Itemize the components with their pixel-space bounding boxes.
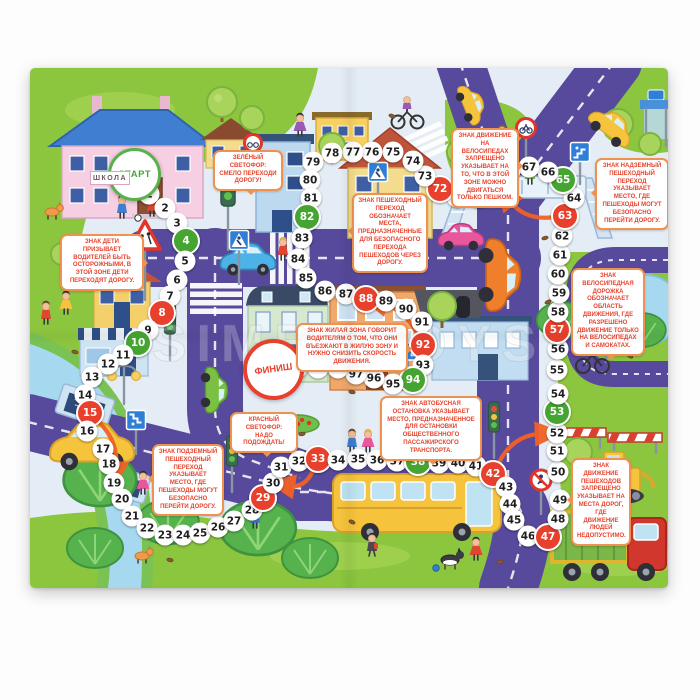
rule-callout-residential-zone-sign: ЗНАК ЖИЛАЯ ЗОНА ГОВОРИТ ВОДИТЕЛЯМ О ТОМ,… [296,323,408,372]
space-84: 84 [288,249,309,270]
rule-callout-underground-crossing-sign: ЗНАК ПОДЗЕМНЫЙ ПЕШЕХОДНЫЙ ПЕРЕХОД УКАЗЫВ… [152,444,224,516]
space-16: 16 [77,421,98,442]
rule-callout-children-sign: ЗНАК ДЕТИ ПРИЗЫВАЕТ ВОДИТЕЛЕЙ БЫТЬ ОСТОР… [60,234,144,291]
space-60: 60 [548,264,569,285]
space-76: 76 [362,142,383,163]
building-blue-low [428,316,532,380]
space-66: 66 [538,162,559,183]
space-59: 59 [549,283,570,304]
space-50: 50 [548,462,569,483]
space-35: 35 [348,449,369,470]
space-77: 77 [343,142,364,163]
space-82: 82 [293,203,321,231]
space-5: 5 [175,251,196,272]
rule-callout-crosswalk-sign: ЗНАК ПЕШЕХОДНЫЙ ПЕРЕХОД ОБОЗНАЧАЕТ МЕСТА… [352,193,428,273]
space-34: 34 [328,450,349,471]
space-75: 75 [383,142,404,163]
rule-callout-bus-stop-sign: ЗНАК АВТОБУСНАЯ ОСТАНОВКА УКАЗЫВАЕТ МЕСТ… [380,396,482,461]
space-89: 89 [376,291,397,312]
space-55: 55 [547,360,568,381]
space-83: 83 [292,228,313,249]
board-game-photo: SIMBATOYS 123456789101112131415161718192… [0,0,700,700]
space-58: 58 [548,302,569,323]
rule-callout-red-light: КРАСНЫЙ СВЕТОФОР: НАДО ПОДОЖДАТЬ! [230,412,298,453]
school-sign: ШКОЛА [90,171,130,185]
space-78: 78 [322,143,343,164]
football [135,215,141,221]
space-74: 74 [403,151,424,172]
space-51: 51 [547,441,568,462]
rule-callout-overhead-crossing-sign: ЗНАК НАДЗЕМНЫЙ ПЕШЕХОДНЫЙ ПЕРЕХОД УКАЗЫВ… [595,158,668,230]
space-85: 85 [296,268,317,289]
bus-queue-2 [362,429,375,452]
rule-callout-green-light: ЗЕЛЁНЫЙ СВЕТОФОР: СМЕЛО ПЕРЕХОДИ ДОРОГУ! [213,150,283,191]
space-61: 61 [550,245,571,266]
game-board: SIMBATOYS 123456789101112131415161718192… [30,68,668,588]
cyclist-top [392,68,424,129]
rule-callout-bike-path-sign: ЗНАК ВЕЛОСИПЕДНАЯ ДОРОЖКА ОБОЗНАЧАЕТ ОБЛ… [571,268,645,356]
space-48: 48 [548,509,569,530]
rule-callout-no-bicycles-sign: ЗНАК ДВИЖЕНИЕ НА ВЕЛОСИПЕДАХ ЗАПРЕЩЕНО У… [451,128,519,208]
space-86: 86 [315,281,336,302]
space-91: 91 [412,312,433,333]
space-95: 95 [383,374,404,395]
dog-ball [433,565,439,571]
space-18: 18 [99,454,120,475]
rule-callout-no-pedestrians-sign: ЗНАК ДВИЖЕНИЕ ПЕШЕХОДОВ ЗАПРЕЩЕНО УКАЗЫВ… [571,458,631,546]
space-54: 54 [548,384,569,405]
bus [333,474,501,541]
